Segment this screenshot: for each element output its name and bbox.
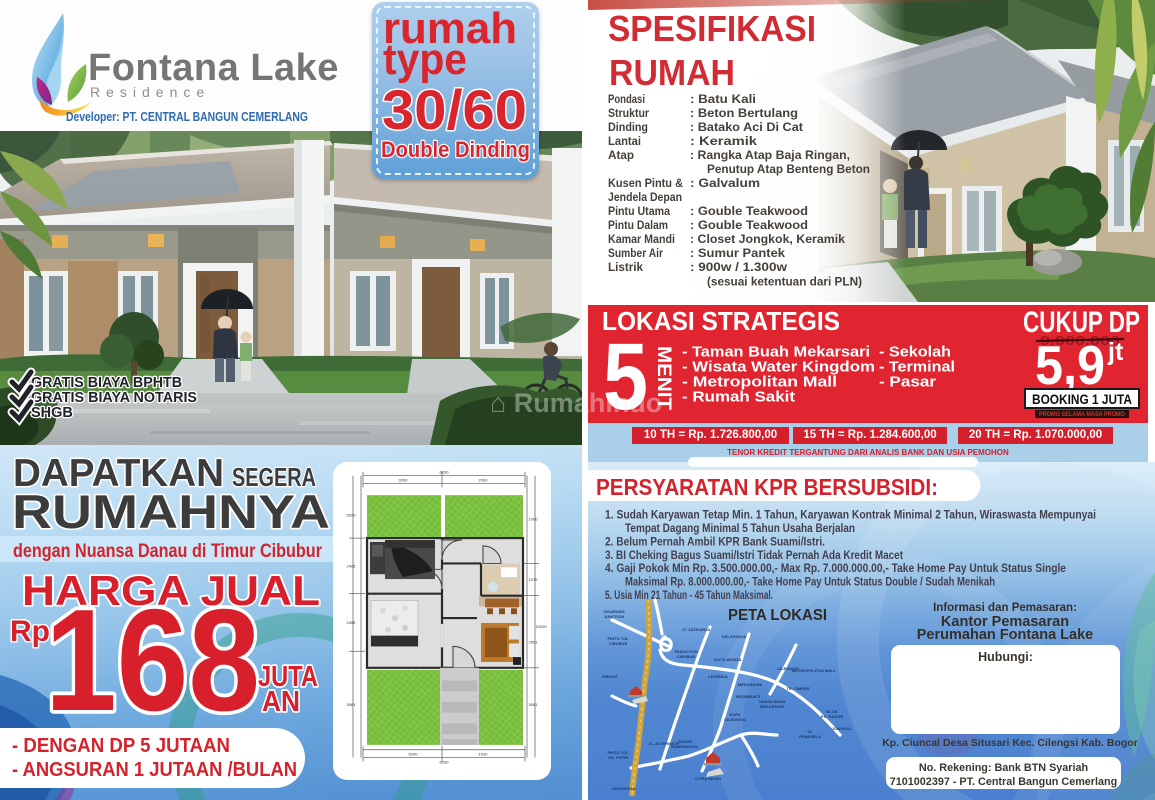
svg-text:3061: 3061 xyxy=(529,702,538,707)
svg-text:1000: 1000 xyxy=(529,517,539,522)
svg-text:JONGGOL: JONGGOL xyxy=(832,726,853,731)
svg-text:6030: 6030 xyxy=(440,470,450,475)
svg-text:: Keramik: : Keramik xyxy=(690,134,757,148)
svg-text:: Sumur Pantek: : Sumur Pantek xyxy=(690,246,785,260)
svg-text:METROPOLITAN MALL: METROPOLITAN MALL xyxy=(792,668,836,673)
svg-text:JUNCTION: JUNCTION xyxy=(604,614,625,619)
svg-text:2551: 2551 xyxy=(529,639,538,644)
svg-text:2455: 2455 xyxy=(347,620,357,625)
svg-text:PASIRMUKTI: PASIRMUKTI xyxy=(736,694,761,699)
svg-text:PETA LOKASI: PETA LOKASI xyxy=(728,607,827,624)
svg-text:5200: 5200 xyxy=(347,513,357,518)
svg-text:LEGENDA: LEGENDA xyxy=(708,674,728,679)
svg-text:- Rumah Sakit: - Rumah Sakit xyxy=(682,389,795,406)
svg-text:: Closet Jongkok, Keramik: : Closet Jongkok, Keramik xyxy=(690,232,845,246)
svg-text:PS. PANTRI: PS. PANTRI xyxy=(821,714,843,719)
svg-text:2030: 2030 xyxy=(479,478,489,483)
svg-text:BAMPINGGOL: BAMPINGGOL xyxy=(671,744,699,749)
svg-text:: Batu Kali: : Batu Kali xyxy=(690,92,756,106)
svg-text:Atap: Atap xyxy=(608,148,634,162)
svg-text:Lantai: Lantai xyxy=(608,134,641,148)
svg-text:MEKARSARI: MEKARSARI xyxy=(738,682,762,687)
svg-text:SPESIFIKASI: SPESIFIKASI xyxy=(608,8,816,49)
svg-text:: Gouble Teakwood: : Gouble Teakwood xyxy=(690,218,808,232)
svg-text:Kamar Mandi: Kamar Mandi xyxy=(608,232,675,246)
svg-text:: 900w / 1.300w: : 900w / 1.300w xyxy=(690,260,788,274)
svg-text:5200: 5200 xyxy=(409,752,419,757)
svg-text:Listrik: Listrik xyxy=(608,260,643,274)
svg-text:PROMO SELAMA MASA PROMO: PROMO SELAMA MASA PROMO xyxy=(1039,412,1125,418)
svg-text:GN. PUTRI: GN. PUTRI xyxy=(608,755,628,760)
svg-text:CILEUNGSI: CILEUNGSI xyxy=(724,717,746,722)
svg-text:GRATIS BIAYA BPHTB: GRATIS BIAYA BPHTB xyxy=(31,375,182,391)
svg-text:30/60: 30/60 xyxy=(382,78,527,141)
svg-text:SHGB: SHGB xyxy=(31,405,73,421)
svg-text:6030: 6030 xyxy=(440,759,450,764)
svg-text:: Galvalum: : Galvalum xyxy=(690,176,760,190)
svg-text:RUMAH: RUMAH xyxy=(609,52,735,93)
svg-text:BOOKING 1 JUTA: BOOKING 1 JUTA xyxy=(1032,392,1132,407)
svg-text:AN: AN xyxy=(262,686,300,718)
svg-text:2. Belum Pernah Ambil KPR Bank: 2. Belum Pernah Ambil KPR Bank Suami/Ist… xyxy=(605,534,825,548)
svg-text:type: type xyxy=(383,35,467,84)
svg-text:: Batako Aci Di Cat: : Batako Aci Di Cat xyxy=(690,120,803,134)
svg-text:KELAPANYA: KELAPANYA xyxy=(722,634,746,639)
svg-text:Jendela Depan: Jendela Depan xyxy=(608,190,682,204)
svg-text:jt: jt xyxy=(1107,338,1124,366)
svg-text:5,9: 5,9 xyxy=(1035,334,1105,396)
svg-text:: Rangka Atap Baja Ringan,: : Rangka Atap Baja Ringan, xyxy=(690,148,850,162)
svg-text:2425: 2425 xyxy=(347,563,357,568)
svg-text:- ANGSURAN 1 JUTAAN /BULAN: - ANGSURAN 1 JUTAAN /BULAN xyxy=(12,759,297,781)
svg-text:CITRA INDAH: CITRA INDAH xyxy=(695,776,721,781)
svg-text:MEKARSARI: MEKARSARI xyxy=(760,704,784,709)
svg-text:CIBUBUR: CIBUBUR xyxy=(677,654,696,659)
svg-text:Maksimal Rp. 8.000.000.00,- Ta: Maksimal Rp. 8.000.000.00,- Take Home Pa… xyxy=(625,575,995,589)
svg-text:dengan Nuansa Danau di Timur C: dengan Nuansa Danau di Timur Cibubur xyxy=(13,540,322,562)
svg-text:10200: 10200 xyxy=(535,624,547,629)
svg-text:3200: 3200 xyxy=(399,478,409,483)
svg-text:SIRKUIT: SIRKUIT xyxy=(602,674,619,679)
svg-text:Pintu Utama: Pintu Utama xyxy=(608,204,670,218)
svg-text:1030: 1030 xyxy=(479,752,489,757)
svg-text:PERSYARATAN KPR BERSUBSIDI:: PERSYARATAN KPR BERSUBSIDI: xyxy=(596,474,938,500)
svg-text:Dinding: Dinding xyxy=(608,120,648,134)
svg-text:TK. CIMPAR: TK. CIMPAR xyxy=(786,686,809,691)
svg-text:Struktur: Struktur xyxy=(608,106,649,120)
svg-text:: Beton Bertulang: : Beton Bertulang xyxy=(690,106,798,120)
svg-text:: Gouble Teakwood: : Gouble Teakwood xyxy=(690,204,808,218)
svg-text:Tempat Dagang Minimal 5 Tahun: Tempat Dagang Minimal 5 Tahun Usaha Berj… xyxy=(625,521,855,535)
svg-text:Residence: Residence xyxy=(90,84,210,100)
svg-text:Penutup Atap Benteng Beton: Penutup Atap Benteng Beton xyxy=(707,162,870,176)
svg-text:Double Dinding: Double Dinding xyxy=(381,137,530,162)
svg-text:GRATIS BIAYA NOTARIS: GRATIS BIAYA NOTARIS xyxy=(31,390,197,406)
svg-text:- Pasar: - Pasar xyxy=(879,374,936,391)
svg-text:KOTA WISATA: KOTA WISATA xyxy=(714,657,741,662)
svg-text:Pintu Dalam: Pintu Dalam xyxy=(608,218,668,232)
svg-text:KRANGGAN: KRANGGAN xyxy=(612,786,636,791)
svg-text:Kusen Pintu &: Kusen Pintu & xyxy=(608,176,683,190)
svg-text:FRANSELA: FRANSELA xyxy=(799,734,821,739)
svg-text:JT. JATIKARYA: JT. JATIKARYA xyxy=(682,627,711,632)
svg-text:Sumber Air: Sumber Air xyxy=(608,246,663,260)
svg-text:Pondasi: Pondasi xyxy=(608,92,645,106)
svg-text:RUMAHNYA: RUMAHNYA xyxy=(12,485,330,538)
svg-text:3061: 3061 xyxy=(347,702,356,707)
svg-text:CIBUBUR: CIBUBUR xyxy=(609,641,628,646)
svg-text:4. Gaji Pokok Min Rp. 3.500.00: 4. Gaji Pokok Min Rp. 3.500.000.00,- Max… xyxy=(605,561,1066,575)
svg-text:1975: 1975 xyxy=(529,577,539,582)
svg-text:(sesuai ketentuan dari PLN): (sesuai ketentuan dari PLN) xyxy=(707,275,862,289)
svg-text:Fontana Lake: Fontana Lake xyxy=(88,47,339,89)
svg-text:168: 168 xyxy=(45,579,260,741)
svg-text:- DENGAN DP 5 JUTAAN: - DENGAN DP 5 JUTAAN xyxy=(12,735,230,757)
svg-text:3. BI Cheking Bagus Suami/Istr: 3. BI Cheking Bagus Suami/Istri Tidak Pe… xyxy=(605,548,903,562)
svg-text:1. Sudah Karyawan Tetap Min. 1: 1. Sudah Karyawan Tetap Min. 1 Tahun, Ka… xyxy=(605,508,1096,522)
svg-text:Developer: PT. CENTRAL BANGUN: Developer: PT. CENTRAL BANGUN CEMERLANG xyxy=(66,110,308,124)
